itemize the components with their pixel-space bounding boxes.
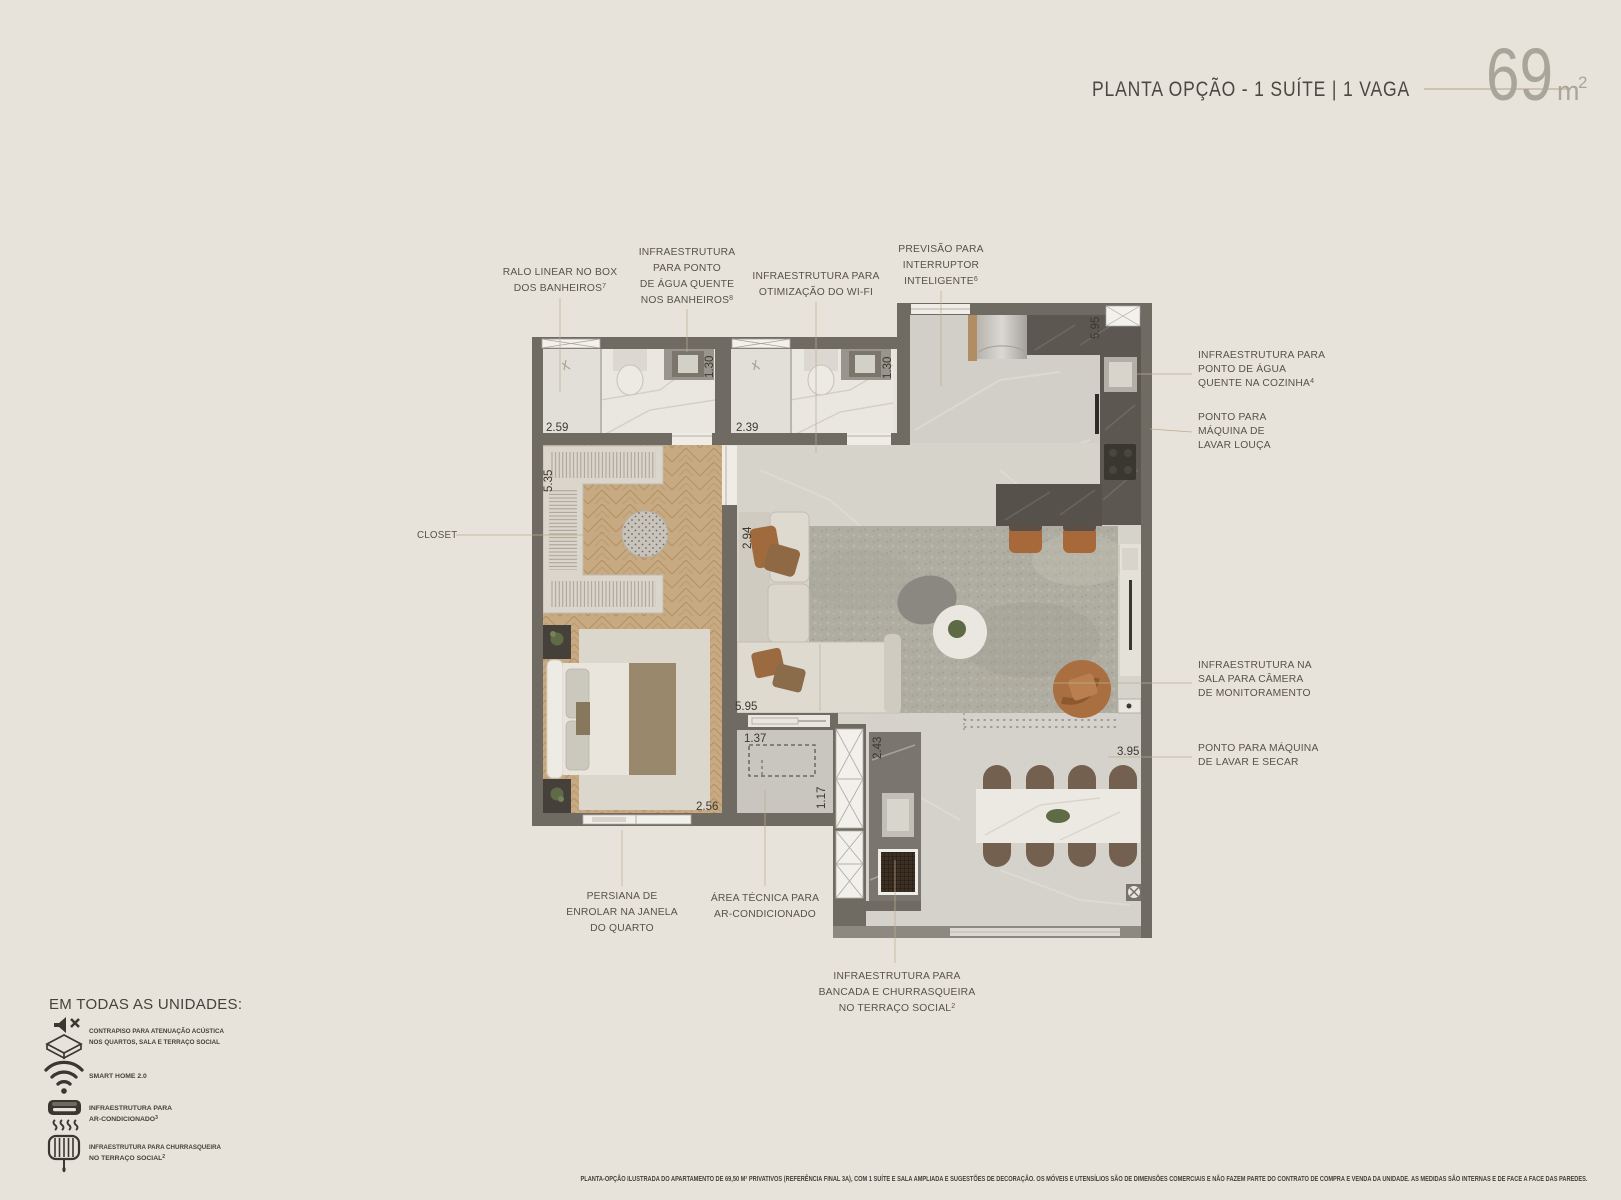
svg-text:DE MONITORAMENTO: DE MONITORAMENTO <box>1198 688 1311 699</box>
svg-text:69: 69 <box>1486 33 1553 116</box>
svg-text:DOS BANHEIROS7: DOS BANHEIROS7 <box>514 283 607 294</box>
svg-text:2.94: 2.94 <box>742 526 754 549</box>
svg-text:INFRAESTRUTURA PARA: INFRAESTRUTURA PARA <box>752 271 879 282</box>
svg-text:PREVISÃO PARA: PREVISÃO PARA <box>898 242 983 255</box>
svg-text:DE LAVAR E SECAR: DE LAVAR E SECAR <box>1198 757 1299 768</box>
svg-text:2.43: 2.43 <box>872 737 884 759</box>
svg-text:LAVAR LOUÇA: LAVAR LOUÇA <box>1198 440 1271 451</box>
svg-text:m: m <box>1557 76 1580 106</box>
svg-text:AR-CONDICIONADO: AR-CONDICIONADO <box>714 909 816 920</box>
svg-text:PONTO DE ÁGUA: PONTO DE ÁGUA <box>1198 362 1286 375</box>
svg-text:NO TERRAÇO SOCIAL2: NO TERRAÇO SOCIAL2 <box>89 1154 165 1162</box>
svg-text:1.17: 1.17 <box>816 787 828 809</box>
svg-text:EM TODAS AS UNIDADES:: EM TODAS AS UNIDADES: <box>49 996 242 1013</box>
svg-text:INFRAESTRUTURA PARA: INFRAESTRUTURA PARA <box>1198 350 1325 361</box>
svg-text:INTERRUPTOR: INTERRUPTOR <box>903 260 979 271</box>
svg-text:ENROLAR NA JANELA: ENROLAR NA JANELA <box>566 907 678 918</box>
svg-text:INFRAESTRUTURA PARA CHURRASQUE: INFRAESTRUTURA PARA CHURRASQUEIRA <box>89 1144 221 1151</box>
svg-text:INFRAESTRUTURA: INFRAESTRUTURA <box>639 247 736 258</box>
svg-text:1.30: 1.30 <box>882 357 894 379</box>
svg-text:5.95: 5.95 <box>1090 317 1102 339</box>
svg-text:SMART HOME 2.0: SMART HOME 2.0 <box>89 1073 147 1080</box>
svg-text:INTELIGENTE6: INTELIGENTE6 <box>904 276 978 287</box>
svg-text:AR-CONDICIONADO3: AR-CONDICIONADO3 <box>89 1115 158 1123</box>
svg-text:DO QUARTO: DO QUARTO <box>590 923 654 934</box>
svg-text:QUENTE NA COZINHA4: QUENTE NA COZINHA4 <box>1198 378 1314 389</box>
svg-text:BANCADA E CHURRASQUEIRA: BANCADA E CHURRASQUEIRA <box>819 987 976 998</box>
svg-text:RALO LINEAR NO BOX: RALO LINEAR NO BOX <box>503 267 618 278</box>
svg-text:PLANTA-OPÇÃO ILUSTRADA DO APAR: PLANTA-OPÇÃO ILUSTRADA DO APARTAMENTO DE… <box>581 1174 1588 1183</box>
svg-text:ÁREA TÉCNICA PARA: ÁREA TÉCNICA PARA <box>711 891 819 904</box>
svg-text:PERSIANA DE: PERSIANA DE <box>587 891 658 902</box>
svg-text:DE ÁGUA QUENTE: DE ÁGUA QUENTE <box>640 277 734 290</box>
svg-text:NO TERRAÇO SOCIAL2: NO TERRAÇO SOCIAL2 <box>839 1003 956 1014</box>
svg-text:OTIMIZAÇÃO DO WI-FI: OTIMIZAÇÃO DO WI-FI <box>759 285 873 298</box>
svg-text:PONTO PARA MÁQUINA: PONTO PARA MÁQUINA <box>1198 741 1319 754</box>
svg-text:CONTRAPISO PARA ATENUAÇÃO ACÚS: CONTRAPISO PARA ATENUAÇÃO ACÚSTICA <box>89 1026 224 1035</box>
svg-text:CLOSET: CLOSET <box>417 530 457 541</box>
svg-text:2.59: 2.59 <box>546 422 568 434</box>
svg-text:PLANTA OPÇÃO - 1 SUÍTE | 1 VAG: PLANTA OPÇÃO - 1 SUÍTE | 1 VAGA <box>1092 77 1410 101</box>
svg-text:PONTO PARA: PONTO PARA <box>1198 412 1267 423</box>
svg-text:MÁQUINA DE: MÁQUINA DE <box>1198 424 1265 437</box>
svg-text:2: 2 <box>1578 73 1587 92</box>
svg-text:3.95: 3.95 <box>1117 746 1139 758</box>
svg-text:5.95: 5.95 <box>735 701 757 713</box>
svg-text:PARA PONTO: PARA PONTO <box>653 263 721 274</box>
svg-text:INFRAESTRUTURA PARA: INFRAESTRUTURA PARA <box>89 1105 172 1112</box>
svg-text:NOS BANHEIROS8: NOS BANHEIROS8 <box>641 295 734 306</box>
svg-text:1.37: 1.37 <box>744 733 766 745</box>
svg-text:1.30: 1.30 <box>704 356 716 378</box>
svg-text:5.35: 5.35 <box>543 470 555 492</box>
svg-text:SALA PARA CÂMERA: SALA PARA CÂMERA <box>1198 672 1303 685</box>
svg-text:INFRAESTRUTURA PARA: INFRAESTRUTURA PARA <box>833 971 960 982</box>
svg-text:INFRAESTRUTURA NA: INFRAESTRUTURA NA <box>1198 660 1312 671</box>
svg-text:2.39: 2.39 <box>736 422 758 434</box>
svg-text:2.56: 2.56 <box>696 801 718 813</box>
svg-text:NOS QUARTOS, SALA E TERRAÇO SO: NOS QUARTOS, SALA E TERRAÇO SOCIAL <box>89 1039 220 1046</box>
